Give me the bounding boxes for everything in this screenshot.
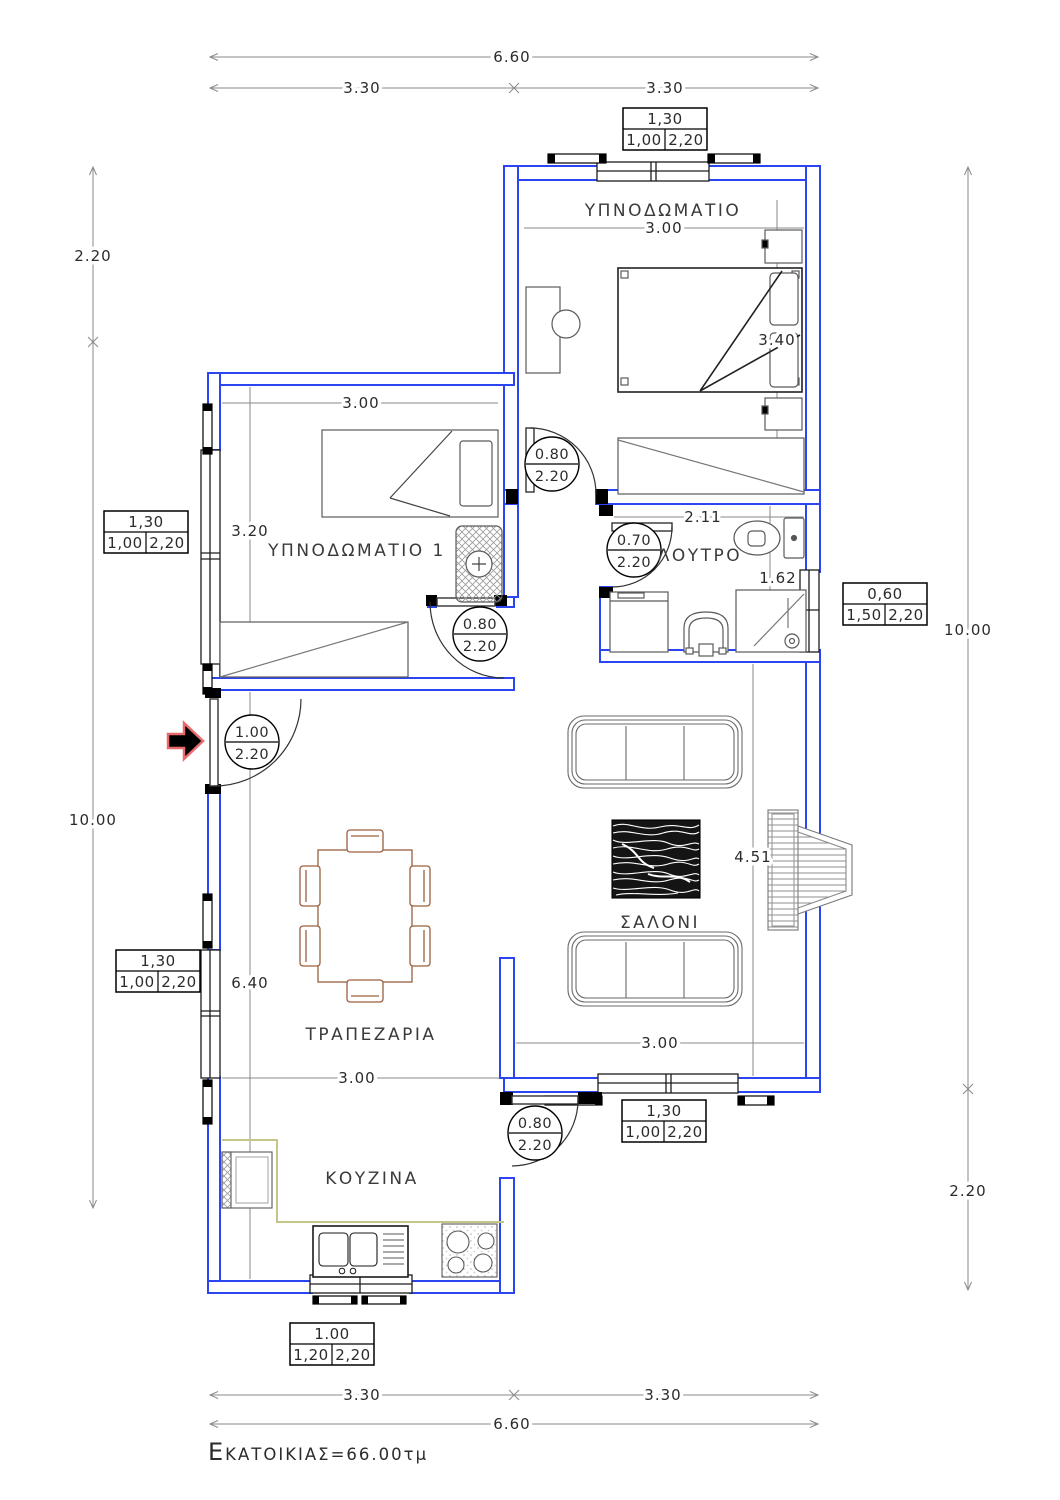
- door-height: 2.20: [235, 747, 269, 763]
- window-width: 1,30: [128, 513, 163, 531]
- window-height: 2,20: [149, 534, 184, 552]
- dim-bedroom-depth: 3.40: [758, 331, 795, 349]
- rug: [612, 820, 700, 898]
- door-tag-kitchen: 0.80 2.20: [508, 1106, 562, 1160]
- door-width: 0.80: [535, 447, 569, 463]
- window-sill: 1,50: [846, 606, 881, 624]
- kitchen-fixtures: [222, 1140, 504, 1277]
- window-width: 1.00: [314, 1325, 349, 1343]
- window-height: 2,20: [335, 1346, 370, 1364]
- dim-dining-depth: 6.40: [231, 974, 268, 992]
- door-height: 2.20: [617, 555, 651, 571]
- dim-top-overall: 6.60: [493, 48, 530, 66]
- sofa-bottom: [568, 932, 742, 1006]
- dim-bedroom-width: 3.00: [645, 219, 682, 237]
- dim-bedroom1-width: 3.00: [342, 394, 379, 412]
- door-tag-bedroom1: 0.80 2.20: [453, 607, 507, 661]
- dim-bathroom-depth: 1.62: [759, 569, 796, 587]
- door-height: 2.20: [535, 469, 569, 485]
- door-tag-bathroom: 0.70 2.20: [607, 523, 661, 577]
- room-label-bathroom: ΛΟΥΤΡΟ: [658, 546, 742, 566]
- door-tag-entrance: 1.00 2.20: [225, 715, 279, 769]
- stove: [442, 1224, 497, 1277]
- door-width: 1.00: [235, 725, 269, 741]
- window-schedule-left1: 1,30 1,00 2,20: [104, 511, 188, 553]
- dim-bottom-left: 3.30: [343, 1386, 380, 1404]
- window-bedroom1-left: [201, 450, 220, 664]
- dim-bathroom-width: 2.11: [684, 508, 721, 526]
- door-tag-bedroom: 0.80 2.20: [525, 437, 579, 491]
- window-schedule-left2: 1,30 1,00 2,20: [116, 950, 200, 992]
- window-width: 1,30: [647, 110, 682, 128]
- room-label-bedroom1: ΥΠΝΟΔΩΜΑΤΙΟ 1: [267, 541, 446, 561]
- door-height: 2.20: [463, 639, 497, 655]
- dim-living-depth: 4.51: [734, 848, 771, 866]
- window-sill: 1,20: [293, 1346, 328, 1364]
- window-height: 2,20: [888, 606, 923, 624]
- room-label-dining: ΤΡΑΠΕΖΑΡΙΑ: [305, 1025, 437, 1045]
- door-width: 0.80: [463, 617, 497, 633]
- door-height: 2.20: [518, 1138, 552, 1154]
- dining-furniture: [300, 830, 430, 1002]
- dim-living-width: 3.00: [641, 1034, 678, 1052]
- floor-plan-drawing: 1.00 2.20 0.80 2.20 0.80 2.20 0.70 2.20 …: [0, 0, 1060, 1500]
- window-sill: 1,00: [626, 131, 661, 149]
- dim-right-main: 10.00: [944, 621, 992, 639]
- dim-bottom-right: 3.30: [644, 1386, 681, 1404]
- room-label-living: ΣΑΛΟΝΙ: [620, 913, 700, 933]
- dim-bedroom1-depth: 3.20: [231, 522, 268, 540]
- room-label-bedroom: ΥΠΝΟΔΩΜΑΤΙΟ: [584, 201, 741, 221]
- window-schedule-top: 1,30 1,00 2,20: [623, 108, 707, 150]
- window-sill: 1,00: [625, 1123, 660, 1141]
- dim-top-right: 3.30: [646, 79, 683, 97]
- window-width: 0,60: [867, 585, 902, 603]
- dim-left-main: 10.00: [69, 811, 117, 829]
- window-top: [597, 162, 709, 181]
- window-schedule-kitchen: 1.00 1,20 2,20: [290, 1323, 374, 1365]
- window-schedule-right: 0,60 1,50 2,20: [843, 583, 927, 625]
- door-width: 0.80: [518, 1116, 552, 1132]
- door-width: 0.70: [617, 533, 651, 549]
- window-height: 2,20: [668, 131, 703, 149]
- window-sill: 1,00: [107, 534, 142, 552]
- floor-plan-page: 1.00 2.20 0.80 2.20 0.80 2.20 0.70 2.20 …: [0, 0, 1060, 1500]
- window-living-bottom: [598, 1074, 738, 1093]
- window-height: 2,20: [161, 973, 196, 991]
- window-width: 1,30: [140, 952, 175, 970]
- dim-bottom-overall: 6.60: [493, 1415, 530, 1433]
- window-schedule-living: 1,30 1,00 2,20: [622, 1100, 706, 1142]
- fridge: [222, 1152, 272, 1208]
- room-label-kitchen: ΚΟΥΖΙΝΑ: [325, 1169, 418, 1189]
- dim-dining-width: 3.00: [338, 1069, 375, 1087]
- window-width: 1,30: [646, 1102, 681, 1120]
- dim-right-lower: 2.20: [949, 1182, 986, 1200]
- doors-drawn: [205, 428, 672, 1166]
- area-note-initial: Ε: [208, 1438, 225, 1466]
- entrance-arrow-icon: [168, 723, 203, 759]
- dim-left-upper: 2.20: [74, 247, 111, 265]
- window-sill: 1,00: [119, 973, 154, 991]
- area-note: ΕΚΑΤΟΙΚΙΑΣ=66.00τμ: [208, 1438, 428, 1466]
- sofa-top: [568, 716, 742, 788]
- window-dining-left: [201, 950, 220, 1078]
- dim-top-left: 3.30: [343, 79, 380, 97]
- sink-unit: [313, 1226, 408, 1277]
- window-height: 2,20: [667, 1123, 702, 1141]
- area-note-rest: ΚΑΤΟΙΚΙΑΣ=66.00τμ: [225, 1445, 428, 1464]
